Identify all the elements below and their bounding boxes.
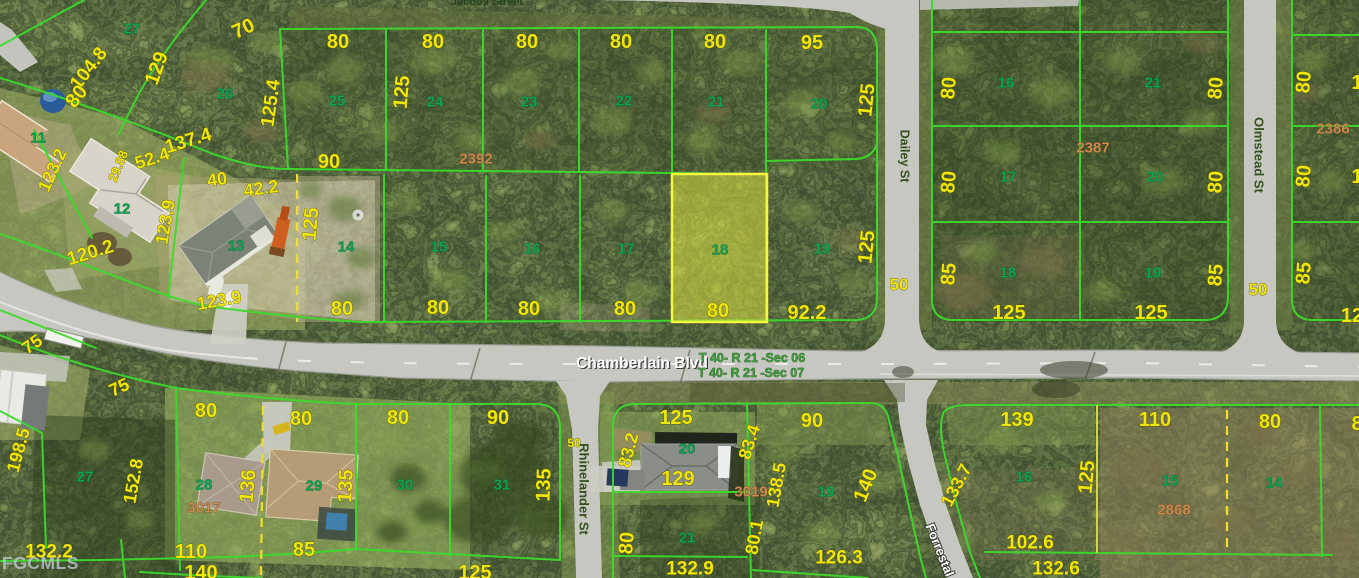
svg-text:12: 12 <box>1341 305 1359 327</box>
svg-text:16: 16 <box>1016 468 1033 485</box>
svg-text:85: 85 <box>1204 263 1228 287</box>
svg-text:27: 27 <box>124 20 141 37</box>
svg-text:16: 16 <box>524 240 541 257</box>
svg-text:16: 16 <box>998 74 1015 91</box>
svg-text:80: 80 <box>704 31 726 53</box>
svg-text:90: 90 <box>487 407 509 429</box>
svg-text:80: 80 <box>387 407 409 429</box>
svg-text:12: 12 <box>114 200 131 217</box>
svg-text:2392: 2392 <box>459 150 492 167</box>
svg-text:95: 95 <box>801 32 823 54</box>
svg-text:80: 80 <box>615 531 639 555</box>
svg-text:102.6: 102.6 <box>1006 533 1054 554</box>
svg-text:136: 136 <box>236 469 261 504</box>
svg-text:T 40- R 21 -Sec 07: T 40- R 21 -Sec 07 <box>698 366 804 380</box>
svg-text:18: 18 <box>712 241 729 258</box>
svg-text:132.9: 132.9 <box>666 559 714 578</box>
svg-text:132.6: 132.6 <box>1032 559 1080 578</box>
svg-text:135: 135 <box>532 468 555 502</box>
svg-text:Chamberlain Blvd: Chamberlain Blvd <box>576 355 708 372</box>
svg-text:85: 85 <box>937 262 961 286</box>
svg-text:110: 110 <box>1139 409 1171 431</box>
svg-text:14: 14 <box>338 238 355 255</box>
svg-text:80: 80 <box>422 31 444 53</box>
svg-text:80: 80 <box>327 31 349 53</box>
svg-text:80: 80 <box>1259 411 1281 433</box>
svg-text:125: 125 <box>1134 302 1167 324</box>
svg-text:1: 1 <box>1351 166 1359 188</box>
svg-text:50: 50 <box>890 275 909 294</box>
svg-text:31: 31 <box>494 476 511 493</box>
svg-text:18: 18 <box>1000 264 1017 281</box>
svg-text:125: 125 <box>854 82 879 117</box>
svg-text:80: 80 <box>614 298 636 320</box>
svg-text:19: 19 <box>818 483 835 500</box>
svg-text:92.2: 92.2 <box>788 302 827 324</box>
svg-text:90: 90 <box>318 151 340 173</box>
svg-text:15: 15 <box>1162 472 1179 489</box>
svg-text:17: 17 <box>1000 168 1017 185</box>
svg-text:80: 80 <box>290 408 312 430</box>
svg-text:19: 19 <box>814 240 831 257</box>
svg-text:125: 125 <box>992 302 1025 324</box>
svg-text:14: 14 <box>1266 474 1283 491</box>
svg-text:80: 80 <box>610 31 632 53</box>
svg-text:29: 29 <box>306 477 323 494</box>
svg-text:23: 23 <box>521 93 538 110</box>
svg-text:110: 110 <box>175 541 207 563</box>
svg-text:126.3: 126.3 <box>815 548 863 569</box>
svg-text:80: 80 <box>331 298 353 320</box>
svg-text:21: 21 <box>679 529 696 546</box>
svg-text:2386: 2386 <box>1316 120 1349 137</box>
svg-text:40: 40 <box>206 168 229 191</box>
svg-text:15: 15 <box>431 238 448 255</box>
svg-text:26: 26 <box>217 85 234 102</box>
svg-text:80: 80 <box>516 31 538 53</box>
svg-text:80: 80 <box>1292 70 1316 94</box>
svg-text:80: 80 <box>195 400 217 422</box>
svg-text:80: 80 <box>937 76 961 100</box>
svg-text:80: 80 <box>427 297 449 319</box>
svg-text:24: 24 <box>427 93 444 110</box>
svg-text:125: 125 <box>458 562 491 578</box>
svg-text:3019: 3019 <box>734 483 767 500</box>
svg-text:85: 85 <box>1292 261 1316 285</box>
svg-text:2387: 2387 <box>1076 139 1109 156</box>
svg-text:135: 135 <box>334 469 358 503</box>
svg-text:Jacobs Street: Jacobs Street <box>451 0 523 8</box>
svg-text:80: 80 <box>1204 76 1228 100</box>
svg-text:1: 1 <box>1351 72 1359 94</box>
svg-text:80: 80 <box>707 300 729 322</box>
svg-text:30: 30 <box>397 476 414 493</box>
svg-text:129: 129 <box>661 468 694 490</box>
svg-text:21: 21 <box>1145 74 1162 91</box>
svg-text:27: 27 <box>77 468 94 485</box>
svg-text:125: 125 <box>659 407 692 429</box>
svg-text:T 40- R 21 -Sec 06: T 40- R 21 -Sec 06 <box>699 351 805 365</box>
svg-text:125: 125 <box>1075 460 1100 495</box>
svg-text:8: 8 <box>1351 413 1359 435</box>
svg-text:50: 50 <box>1249 280 1268 299</box>
svg-text:13: 13 <box>228 237 245 254</box>
svg-text:90: 90 <box>801 410 823 432</box>
svg-text:Olmstead St: Olmstead St <box>1251 117 1266 194</box>
svg-text:25: 25 <box>329 92 346 109</box>
svg-text:80: 80 <box>1204 170 1228 194</box>
svg-text:Dailey St: Dailey St <box>898 130 912 184</box>
svg-text:11: 11 <box>30 129 46 146</box>
svg-text:FGCMLS: FGCMLS <box>2 553 79 573</box>
svg-text:2868: 2868 <box>1157 501 1190 518</box>
svg-text:17: 17 <box>618 240 635 257</box>
svg-text:80: 80 <box>1292 164 1316 188</box>
svg-text:20: 20 <box>1147 168 1164 185</box>
svg-text:80: 80 <box>518 298 540 320</box>
svg-text:3017: 3017 <box>187 499 220 516</box>
svg-text:21: 21 <box>708 93 725 110</box>
svg-text:125: 125 <box>390 75 415 110</box>
svg-text:Rhinelander St: Rhinelander St <box>576 443 591 535</box>
svg-text:80: 80 <box>937 170 961 194</box>
svg-text:125: 125 <box>854 229 879 264</box>
svg-text:139: 139 <box>1000 409 1033 431</box>
svg-text:28: 28 <box>196 476 213 493</box>
svg-text:140: 140 <box>184 562 217 578</box>
svg-text:22: 22 <box>616 92 633 109</box>
svg-text:125: 125 <box>299 207 324 242</box>
svg-text:19: 19 <box>1145 264 1162 281</box>
svg-text:20: 20 <box>811 95 828 112</box>
svg-text:20: 20 <box>679 440 696 457</box>
svg-text:85: 85 <box>293 539 315 561</box>
